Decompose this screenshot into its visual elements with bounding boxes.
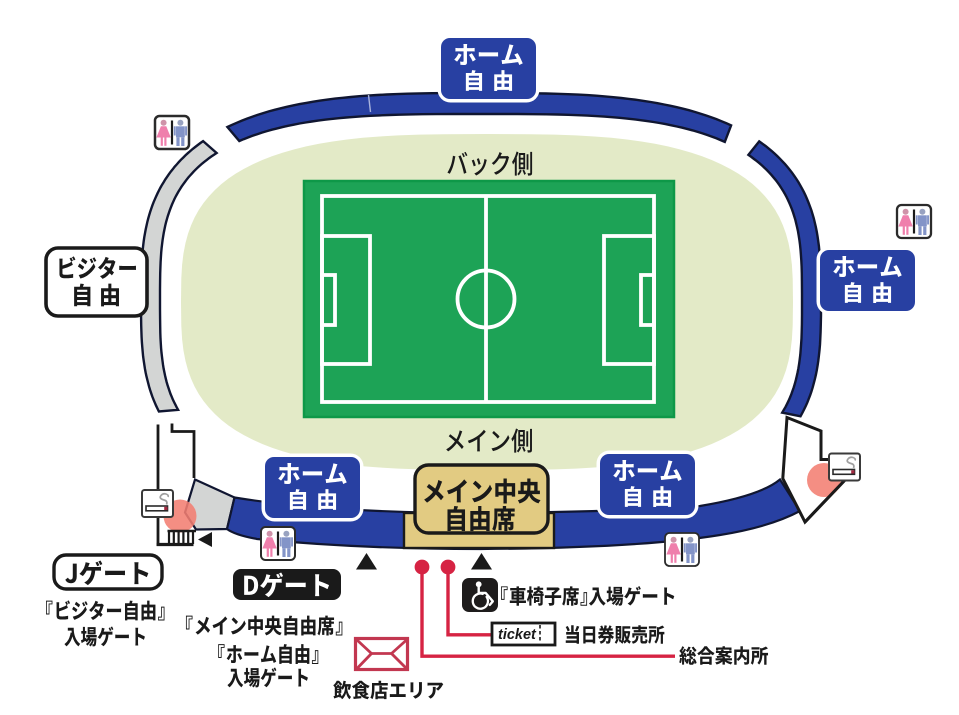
svg-text:ticket: ticket: [498, 627, 537, 643]
